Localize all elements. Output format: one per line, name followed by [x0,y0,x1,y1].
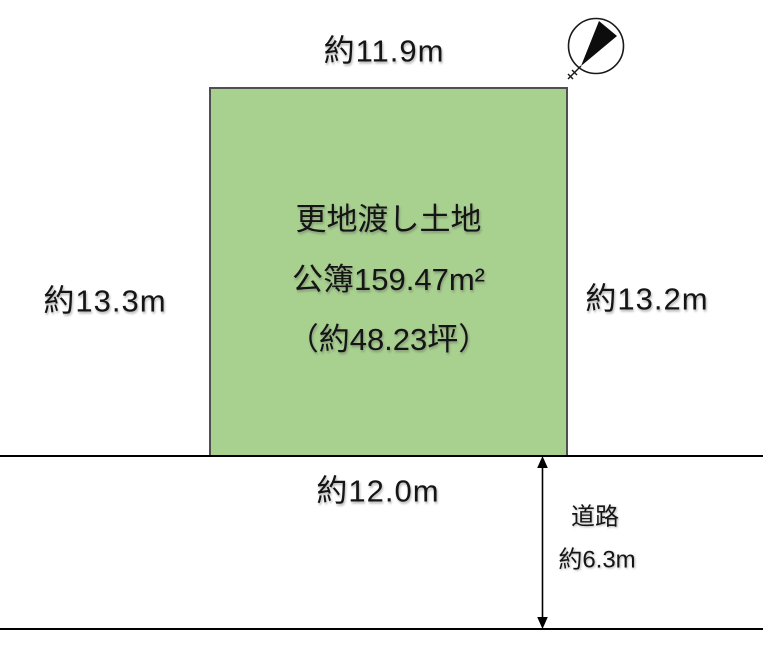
north-arrow-icon [557,9,629,92]
dimension-top-label: 約11.9m [324,26,445,71]
dimension-right-label: 約13.2m [585,274,708,319]
land-parcel: 更地渡し土地 公簿159.47m² （約48.23坪） [209,87,568,457]
parcel-text-block: 更地渡し土地 公簿159.47m² （約48.23坪） [288,204,490,356]
dimension-bottom-label: 約12.0m [316,466,439,511]
parcel-tsubo-area-label: （約48.23坪） [288,324,490,356]
double-headed-vertical-arrow-icon [534,456,551,634]
road-edge-top-line [0,455,763,457]
dimension-left-label: 約13.3m [43,276,166,321]
road-width-label: 約6.3m [558,540,635,575]
road-edge-bottom-line [0,628,763,630]
road-name-label: 道路 [571,497,619,532]
parcel-condition-label: 更地渡し土地 [295,204,481,236]
parcel-registered-area-label: 公簿159.47m² [292,264,485,296]
land-plot-diagram: 約11.9m 約13.3m 約13.2m 更地渡し土地 公簿159.47m² （… [0,0,763,663]
